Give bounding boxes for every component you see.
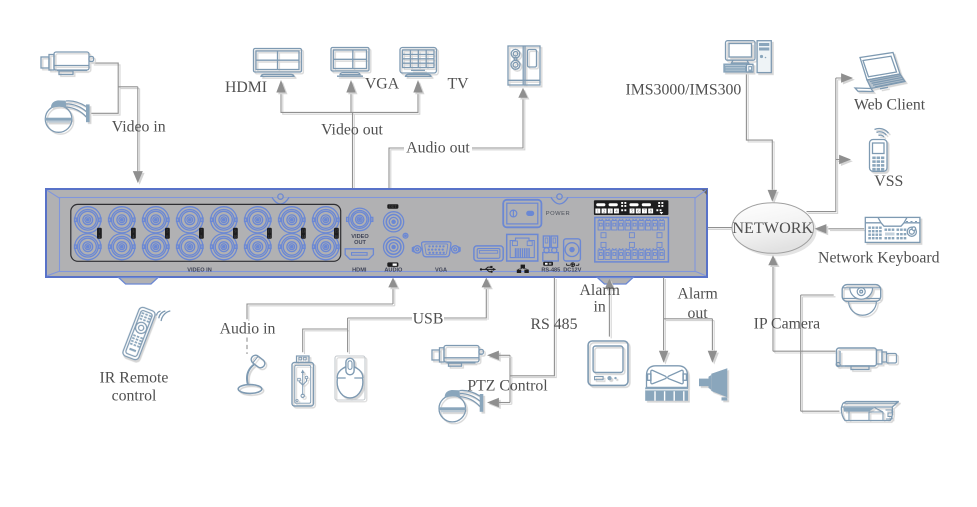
svg-text:Video out: Video out — [321, 122, 383, 139]
svg-text:6: 6 — [166, 234, 168, 239]
svg-text:USB: USB — [413, 310, 444, 327]
svg-text:DC12V: DC12V — [563, 267, 581, 273]
svg-text:5: 5 — [166, 229, 168, 234]
svg-text:12: 12 — [267, 234, 271, 239]
svg-text:13: 13 — [301, 229, 305, 234]
svg-text:Alarm: Alarm — [677, 285, 718, 302]
svg-text:3: 3 — [132, 229, 134, 234]
svg-text:RS 485: RS 485 — [531, 316, 578, 333]
svg-text:10: 10 — [233, 234, 237, 239]
svg-text:OUT: OUT — [389, 205, 397, 209]
svg-text:15: 15 — [334, 229, 338, 234]
svg-text:VGA: VGA — [435, 267, 447, 273]
svg-text:RS-485: RS-485 — [541, 267, 560, 273]
svg-text:in: in — [594, 299, 606, 316]
svg-text:Network Keyboard: Network Keyboard — [818, 250, 940, 267]
svg-text:1: 1 — [98, 229, 100, 234]
svg-text:7: 7 — [200, 229, 202, 234]
svg-text:2: 2 — [98, 234, 100, 239]
svg-text:4: 4 — [132, 234, 134, 239]
svg-text:16: 16 — [334, 234, 338, 239]
svg-text:IP Camera: IP Camera — [754, 316, 821, 333]
svg-text:Alarm: Alarm — [580, 282, 621, 299]
svg-text:Audio in: Audio in — [220, 321, 276, 338]
svg-text:IMS3000/IMS300: IMS3000/IMS300 — [625, 82, 741, 99]
svg-text:HDMI: HDMI — [225, 79, 267, 96]
svg-text:1: 1 — [597, 209, 599, 214]
svg-text:TV: TV — [447, 76, 469, 93]
svg-text:PTZ Control: PTZ Control — [467, 378, 548, 395]
svg-text:HDMI: HDMI — [352, 267, 367, 273]
svg-text:control: control — [112, 387, 157, 404]
svg-text:8: 8 — [200, 234, 202, 239]
svg-text:OUT: OUT — [354, 240, 366, 246]
svg-text:Audio out: Audio out — [406, 140, 470, 157]
svg-text:9: 9 — [234, 229, 236, 234]
svg-text:VGA: VGA — [365, 76, 400, 93]
svg-text:VSS: VSS — [874, 173, 903, 190]
svg-text:Web Client: Web Client — [854, 97, 926, 114]
svg-text:POWER: POWER — [546, 211, 570, 217]
svg-text:out: out — [688, 305, 709, 322]
svg-text:NETWORK: NETWORK — [732, 219, 813, 237]
svg-text:Video in: Video in — [112, 119, 166, 136]
svg-text:11: 11 — [267, 229, 271, 234]
svg-text:VIDEO IN: VIDEO IN — [187, 267, 212, 273]
svg-text:IR Remote: IR Remote — [100, 369, 169, 386]
svg-text:2: 2 — [603, 209, 605, 214]
svg-text:AUDIO: AUDIO — [384, 267, 403, 273]
svg-text:14: 14 — [301, 234, 305, 239]
